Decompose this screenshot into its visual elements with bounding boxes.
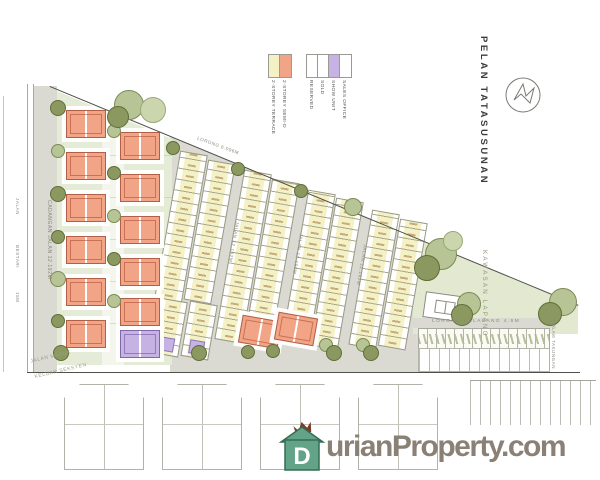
tree-icon	[51, 144, 65, 158]
semi-d-pair	[120, 132, 160, 160]
tree-icon	[231, 162, 245, 176]
plan-title: PELAN TATASUSUNAN	[478, 36, 489, 185]
semi-d-pair	[66, 152, 106, 180]
legend-swatch-semi-d	[279, 54, 292, 78]
tree-icon	[51, 314, 65, 328]
semi-d-pair	[120, 216, 160, 244]
tree-icon	[166, 141, 180, 155]
legend-label-show-unit: SHOW UNIT	[330, 80, 335, 111]
adjacent-lot-group	[64, 384, 144, 470]
tree-icon	[107, 166, 121, 180]
back-lane-label: LORONG BELAKANG 4.9M	[432, 319, 520, 324]
road-line-outer	[27, 84, 28, 373]
tree-icon	[50, 271, 66, 287]
tree-icon	[363, 345, 379, 361]
site-plan-canvas: CADANGAN JALAN 12.192M JALAN BESTARI 15M…	[0, 0, 600, 480]
semi-d-pair	[120, 258, 160, 286]
tree-icon	[140, 97, 166, 123]
show-unit-lot	[158, 336, 175, 352]
legend-label-semi-d: 2-STOREY SEMI-D	[281, 80, 286, 128]
adjacent-lot-group	[162, 384, 242, 470]
durian-house-logo-icon: D	[278, 420, 326, 474]
tree-icon	[326, 345, 342, 361]
tree-icon	[414, 255, 440, 281]
semi-d-pair	[66, 194, 106, 222]
site-boundary-bottom	[27, 372, 580, 373]
legend-swatch-sales-office	[339, 54, 352, 78]
semi-d-pair	[66, 236, 106, 264]
rear-lots-row	[418, 348, 550, 372]
main-road-surface	[33, 86, 57, 372]
semi-d-pair	[66, 320, 106, 348]
tree-icon	[50, 100, 66, 116]
open-space-label: KAWASAN LAPANG	[481, 250, 488, 338]
tree-icon	[51, 230, 65, 244]
outer-road-label: JALAN	[15, 198, 20, 215]
main-road-label: CADANGAN JALAN 12.192M	[46, 200, 52, 279]
tree-icon	[538, 302, 562, 326]
adjacent-narrow-lots	[470, 380, 596, 425]
show-unit-pair	[120, 330, 160, 358]
tree-icon	[107, 209, 121, 223]
semi-d-pair	[120, 174, 160, 202]
durianproperty-watermark: D urianProperty.com	[278, 420, 565, 474]
north-arrow-icon	[504, 76, 542, 114]
tree-icon	[266, 344, 280, 358]
tree-icon	[294, 184, 308, 198]
tree-icon	[50, 186, 66, 202]
outer-road-label: 15M	[15, 292, 20, 303]
tree-icon	[107, 106, 129, 128]
legend-label-sales-office: SALES OFFICE	[341, 80, 346, 119]
watermark-text: urianProperty.com	[326, 432, 565, 462]
legend-label-sold: SOLD	[319, 80, 324, 95]
outer-road-label: BESTARI	[15, 245, 20, 268]
legend-label-terrace: 2-STOREY TERRACE	[270, 80, 275, 134]
semi-d-pair	[66, 110, 106, 138]
tree-icon	[443, 231, 463, 251]
legend-label-reserved: RESERVED	[308, 80, 313, 110]
road-line-inner	[33, 84, 34, 373]
semi-d-pair	[66, 278, 106, 306]
tree-icon	[241, 345, 255, 359]
pond-label: KOLAM TAKUNGAN	[551, 320, 556, 369]
tree-icon	[344, 198, 362, 216]
tree-icon	[107, 252, 121, 266]
logo-letter: D	[293, 443, 310, 470]
outer-road-edge	[3, 96, 4, 372]
tree-icon	[191, 345, 207, 361]
tree-icon	[107, 294, 121, 308]
semi-d-pair	[120, 298, 160, 326]
